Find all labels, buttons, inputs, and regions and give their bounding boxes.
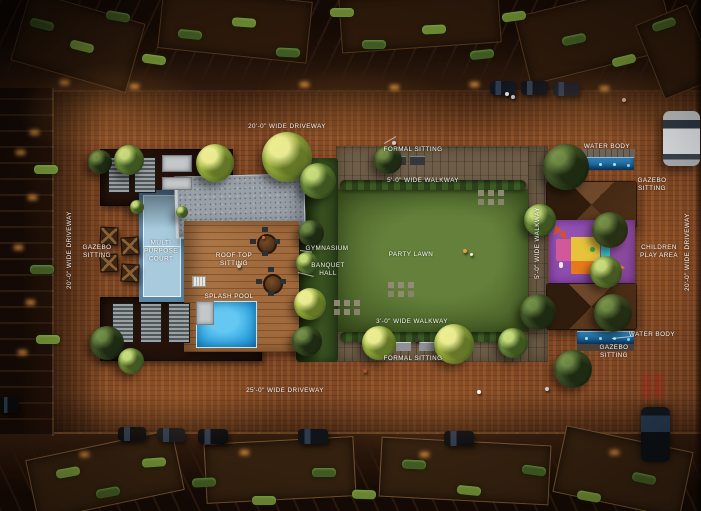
- lit-window: [130, 84, 139, 89]
- tree: [292, 326, 322, 356]
- label-formal-sitting-bottom: FORMAL SITTING: [384, 355, 443, 363]
- person: [392, 141, 396, 145]
- parked-car: [118, 427, 146, 441]
- tree: [118, 348, 144, 374]
- parked-car: [0, 397, 18, 413]
- parked-car: [521, 81, 548, 95]
- tree: [88, 150, 112, 174]
- balcony-planter: [352, 490, 376, 500]
- club-furniture: [162, 155, 192, 172]
- gazebo-sitting-table: [120, 236, 139, 255]
- person: [511, 95, 515, 99]
- label-water-body-top: WATER BODY: [584, 143, 630, 151]
- label-walkway-right: 5'-0" WIDE WALKWAY: [534, 207, 542, 279]
- balcony-planter: [232, 17, 257, 28]
- person: [262, 236, 265, 239]
- balcony-planter: [402, 459, 426, 469]
- parked-car: [553, 82, 579, 96]
- tree: [298, 220, 324, 246]
- label-driveway-right: 20'-0" WIDE DRIVEWAY: [684, 213, 692, 291]
- tree: [592, 212, 628, 248]
- label-party-lawn: PARTY LAWN: [389, 251, 434, 259]
- balcony-planter: [36, 335, 60, 344]
- stepping-stones: [388, 282, 394, 288]
- label-children-play-area: CHILDREN PLAY AREA: [636, 244, 682, 260]
- person: [505, 92, 509, 96]
- lit-window: [28, 195, 37, 200]
- stepping-stones: [478, 190, 484, 196]
- label-walkway-top: 5'-0" WIDE WALKWAY: [387, 177, 459, 185]
- parked-car: [198, 429, 228, 444]
- person: [545, 387, 549, 391]
- tree: [300, 163, 336, 199]
- lit-window: [240, 450, 249, 455]
- party-lawn: [336, 190, 528, 332]
- lit-window: [18, 350, 27, 355]
- tree: [554, 350, 592, 388]
- balcony-planter: [362, 40, 386, 49]
- edge-shadow-right: [694, 0, 701, 511]
- label-roof-top-sitting: ROOF TOP SITTING: [215, 252, 253, 268]
- lit-window: [300, 82, 309, 87]
- club-furniture: [162, 177, 192, 190]
- label-driveway-top: 20'-0" WIDE DRIVEWAY: [248, 123, 326, 131]
- balcony-planter: [34, 165, 58, 174]
- tree: [196, 144, 234, 182]
- label-splash-pool: SPLASH POOL: [204, 293, 253, 301]
- label-gazebo-sitting-bottom-right: GAZEBO SITTING: [596, 344, 632, 360]
- parked-car: [157, 428, 185, 442]
- label-gazebo-sitting-top-right: GAZEBO SITTING: [634, 177, 670, 193]
- tree: [114, 145, 144, 175]
- club-furniture: [196, 301, 214, 325]
- balcony-planter: [30, 265, 54, 274]
- parked-car: [490, 81, 516, 95]
- formal-sitting-bench: [410, 156, 425, 165]
- person: [622, 98, 626, 102]
- play-equipment-green: [590, 247, 595, 252]
- label-gymnasium: GYMNASIUM: [306, 245, 349, 253]
- taillight-glow: [644, 374, 649, 398]
- club-furniture: [168, 303, 190, 343]
- balcony-planter: [192, 477, 216, 487]
- white-car: [663, 111, 700, 166]
- tree: [520, 294, 556, 330]
- balcony-planter: [276, 47, 300, 57]
- balcony-planter: [312, 468, 336, 477]
- west-building-block: [0, 88, 54, 436]
- taillight-glow: [656, 374, 661, 398]
- tree: [594, 294, 632, 332]
- dining-table-set: [250, 227, 280, 257]
- lit-window: [14, 245, 23, 250]
- label-walkway-bottom: 3'-0" WIDE WALKWAY: [376, 318, 448, 326]
- lit-window: [26, 300, 35, 305]
- dining-table-set: [256, 267, 286, 297]
- lit-window: [470, 82, 479, 87]
- balcony-planter: [252, 496, 276, 505]
- person: [415, 338, 419, 342]
- gazebo-sitting-table: [120, 263, 139, 282]
- balcony-planter: [422, 24, 446, 34]
- tree: [590, 256, 622, 288]
- lit-window: [600, 86, 609, 91]
- tree: [498, 328, 528, 358]
- parked-car: [444, 431, 474, 446]
- formal-sitting-bench: [396, 342, 411, 351]
- label-water-body-bottom: WATER BODY: [629, 331, 675, 339]
- lit-window: [420, 452, 429, 457]
- parked-car: [298, 429, 328, 444]
- gazebo-sitting-table: [100, 227, 119, 246]
- child-figure: [559, 262, 563, 268]
- person: [463, 249, 467, 253]
- formal-sitting-bench: [419, 342, 434, 351]
- label-multi-purpose-court: MULTI PURPOSE COURT: [140, 240, 182, 265]
- club-furniture: [140, 303, 162, 343]
- person: [477, 390, 481, 394]
- lit-window: [16, 150, 25, 155]
- lit-window: [30, 130, 39, 135]
- label-driveway-left: 20'-0" WIDE DRIVEWAY: [66, 211, 74, 289]
- stepping-stones: [334, 300, 340, 306]
- label-gazebo-sitting-left: GAZEBO SITTING: [79, 244, 115, 260]
- lit-window: [80, 452, 89, 457]
- person: [470, 253, 473, 256]
- tree: [176, 206, 188, 218]
- deck-lounger: [192, 276, 206, 287]
- dark-car-driving: [641, 407, 670, 462]
- tree: [543, 144, 589, 190]
- balcony-planter: [142, 457, 167, 468]
- lit-window: [60, 80, 69, 85]
- aerial-masterplan-render: 20'-0" WIDE DRIVEWAY FORMAL SITTING 5'-0…: [0, 0, 701, 511]
- tree: [294, 288, 326, 320]
- person: [363, 369, 367, 373]
- lit-window: [390, 85, 399, 90]
- label-driveway-bottom: 25'-0" WIDE DRIVEWAY: [246, 387, 324, 395]
- label-formal-sitting-top: FORMAL SITTING: [384, 146, 443, 154]
- lit-window: [610, 450, 619, 455]
- balcony-planter: [330, 8, 354, 17]
- tree: [130, 200, 144, 214]
